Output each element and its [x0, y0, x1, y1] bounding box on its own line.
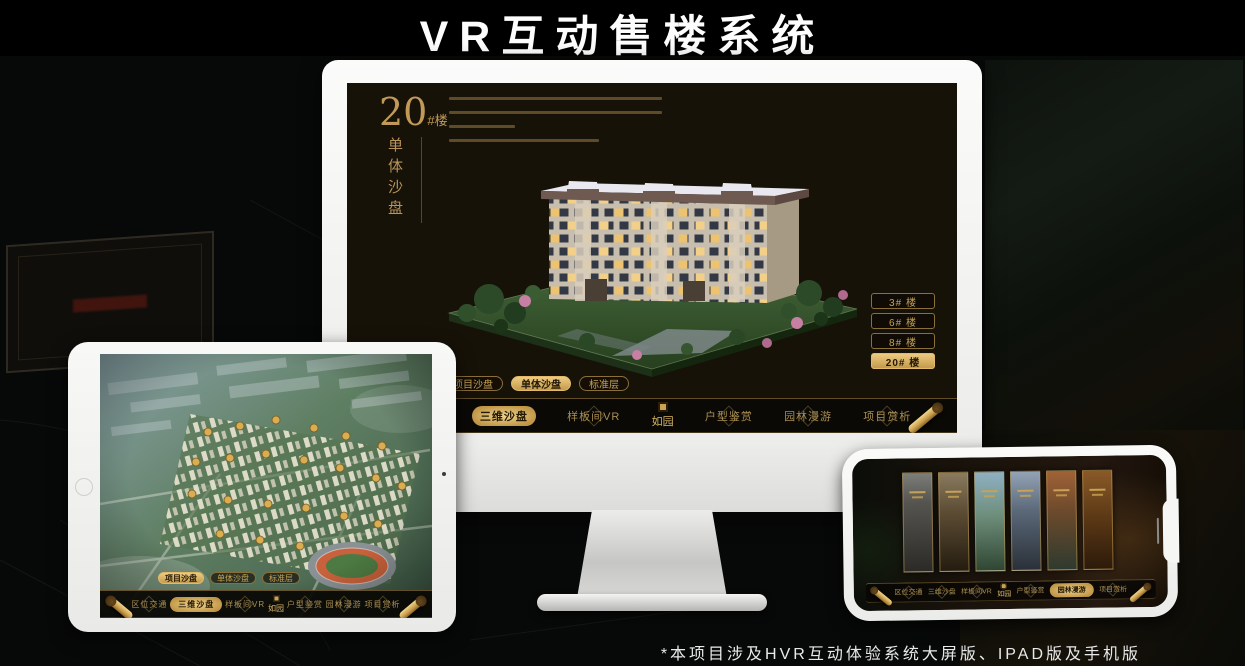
brand-logo: 如园	[652, 402, 674, 429]
brand-logo-text: 如园	[652, 413, 674, 429]
brand-logo-text: 如园	[268, 603, 284, 614]
nav-item-label: 区位交通	[131, 600, 167, 609]
scene-panel[interactable]	[1082, 470, 1113, 570]
nav-item-label: 户型鉴赏	[1016, 588, 1044, 595]
nav-item-unit-plans[interactable]: 户型鉴赏	[1016, 586, 1044, 596]
description-line	[449, 97, 662, 100]
brand-logo-text: 如园	[997, 589, 1011, 599]
phone-notch	[1163, 499, 1180, 563]
floor-button-20[interactable]: 20# 楼	[871, 353, 935, 369]
panel-title-mark	[984, 495, 995, 497]
tablet-screen: 项目沙盘 单体沙盘 标准层 区位交通 三维沙盘 样板间VR 如园 户型鉴赏 园林…	[100, 354, 432, 618]
nav-item-garden-tour[interactable]: 园林漫游	[784, 408, 832, 424]
nav-item-label: 样板间VR	[567, 411, 620, 423]
nav-item-garden-tour[interactable]: 园林漫游	[1050, 583, 1094, 598]
nav-item-label: 户型鉴赏	[705, 411, 753, 423]
scene-panel[interactable]	[974, 471, 1005, 571]
monitor-view-tabs: 项目沙盘 单体沙盘 标准层	[443, 376, 629, 391]
panel-title-mark	[1053, 489, 1069, 491]
floor-button-6[interactable]: 6# 楼	[871, 313, 935, 329]
headline-divider	[421, 137, 422, 223]
nav-item-3d-sandbox[interactable]: 三维沙盘	[472, 406, 536, 426]
tablet-device: 项目沙盘 单体沙盘 标准层 区位交通 三维沙盘 样板间VR 如园 户型鉴赏 园林…	[68, 342, 456, 632]
scene-panel[interactable]	[902, 472, 933, 572]
nav-item-showroom-vr[interactable]: 样板间VR	[961, 586, 992, 596]
monitor-base	[537, 594, 767, 611]
background-photo	[985, 60, 1243, 438]
page-title: VR互动售楼系统	[0, 2, 1245, 64]
phone-screen: 区位交通 三维沙盘 样板间VR 如园 户型鉴赏 园林漫游 项目赏析	[852, 455, 1168, 611]
floor-button-8[interactable]: 8# 楼	[871, 333, 935, 349]
nav-item-location[interactable]: 区位交通	[894, 587, 922, 597]
scene-panel[interactable]	[1010, 471, 1041, 571]
tab-standard-floor[interactable]: 标准层	[262, 572, 300, 584]
panel-title-mark	[1056, 494, 1067, 496]
nav-item-label: 三维沙盘	[928, 589, 956, 596]
nav-item-showroom-vr[interactable]: 样板间VR	[225, 599, 265, 610]
nav-item-label: 区位交通	[894, 589, 922, 596]
tab-single-sandbox[interactable]: 单体沙盘	[511, 376, 571, 391]
nav-item-location[interactable]: 区位交通	[131, 599, 167, 610]
panel-title-mark	[1017, 490, 1033, 492]
plaque-red-text-blur	[73, 294, 147, 312]
nav-item-label: 户型鉴赏	[287, 600, 323, 609]
nav-item-project-intro[interactable]: 项目赏析	[1099, 584, 1127, 594]
nav-item-unit-plans[interactable]: 户型鉴赏	[705, 408, 753, 424]
brand-logo: 如园	[997, 583, 1011, 599]
panel-title-mark	[945, 491, 961, 493]
panel-title-mark	[1092, 494, 1103, 496]
nav-item-label: 样板间VR	[961, 588, 992, 595]
scene-panel[interactable]	[1046, 470, 1077, 570]
building-number-suffix: #楼	[427, 113, 447, 128]
panel-title-mark	[1020, 495, 1031, 497]
camera-icon	[442, 472, 446, 476]
nav-item-showroom-vr[interactable]: 样板间VR	[567, 408, 620, 424]
nav-item-label: 项目赏析	[365, 600, 401, 609]
panel-title-mark	[909, 491, 925, 493]
monitor-stand	[577, 510, 727, 598]
description-line	[449, 111, 662, 114]
tab-project-sandbox[interactable]: 项目沙盘	[158, 572, 204, 584]
nav-item-3d-sandbox[interactable]: 三维沙盘	[170, 597, 222, 612]
phone-device: 区位交通 三维沙盘 样板间VR 如园 户型鉴赏 园林漫游 项目赏析	[842, 445, 1178, 622]
nav-item-label: 园林漫游	[784, 411, 832, 423]
panel-title-mark	[1089, 489, 1105, 491]
tab-standard-floor[interactable]: 标准层	[579, 376, 629, 391]
nav-item-project-intro[interactable]: 项目赏析	[365, 599, 401, 610]
nav-item-label: 样板间VR	[225, 600, 265, 609]
speaker-icon	[1157, 518, 1159, 544]
footnote-text: *本项目涉及HVR互动体验系统大屏版、IPAD版及手机版	[661, 640, 1141, 664]
nav-item-label: 三维沙盘	[480, 411, 528, 423]
panel-title-mark	[912, 496, 923, 498]
seal-icon	[658, 402, 668, 412]
nav-item-garden-tour[interactable]: 园林漫游	[326, 599, 362, 610]
nav-item-label: 三维沙盘	[178, 600, 214, 609]
headline-title: 单体沙盘	[385, 137, 406, 221]
nav-item-label: 项目赏析	[1099, 586, 1127, 593]
panel-title-mark	[981, 490, 997, 492]
scene-panel[interactable]	[938, 472, 969, 572]
description-line	[449, 125, 515, 128]
nav-item-project-intro[interactable]: 项目赏析	[863, 408, 911, 424]
home-button-icon[interactable]	[75, 478, 93, 496]
nav-item-unit-plans[interactable]: 户型鉴赏	[287, 599, 323, 610]
panel-title-mark	[948, 496, 959, 498]
tab-single-sandbox[interactable]: 单体沙盘	[210, 572, 256, 584]
scene-panel-row	[902, 470, 1113, 573]
floor-button-group: 3# 楼 6# 楼 8# 楼 20# 楼	[871, 293, 935, 369]
seal-icon	[273, 595, 280, 602]
nav-item-label: 园林漫游	[1058, 587, 1086, 594]
brand-logo: 如园	[268, 595, 284, 614]
building-3d-model[interactable]	[437, 141, 867, 381]
nav-item-label: 园林漫游	[326, 600, 362, 609]
phone-navbar: 区位交通 三维沙盘 样板间VR 如园 户型鉴赏 园林漫游 项目赏析	[866, 579, 1156, 603]
tablet-view-tabs: 项目沙盘 单体沙盘 标准层	[158, 572, 300, 584]
tablet-navbar: 区位交通 三维沙盘 样板间VR 如园 户型鉴赏 园林漫游 项目赏析	[100, 590, 432, 618]
building-number: 20	[379, 90, 427, 134]
nav-item-label: 项目赏析	[863, 411, 911, 423]
nav-item-3d-sandbox[interactable]: 三维沙盘	[928, 587, 956, 597]
floor-button-3[interactable]: 3# 楼	[871, 293, 935, 309]
